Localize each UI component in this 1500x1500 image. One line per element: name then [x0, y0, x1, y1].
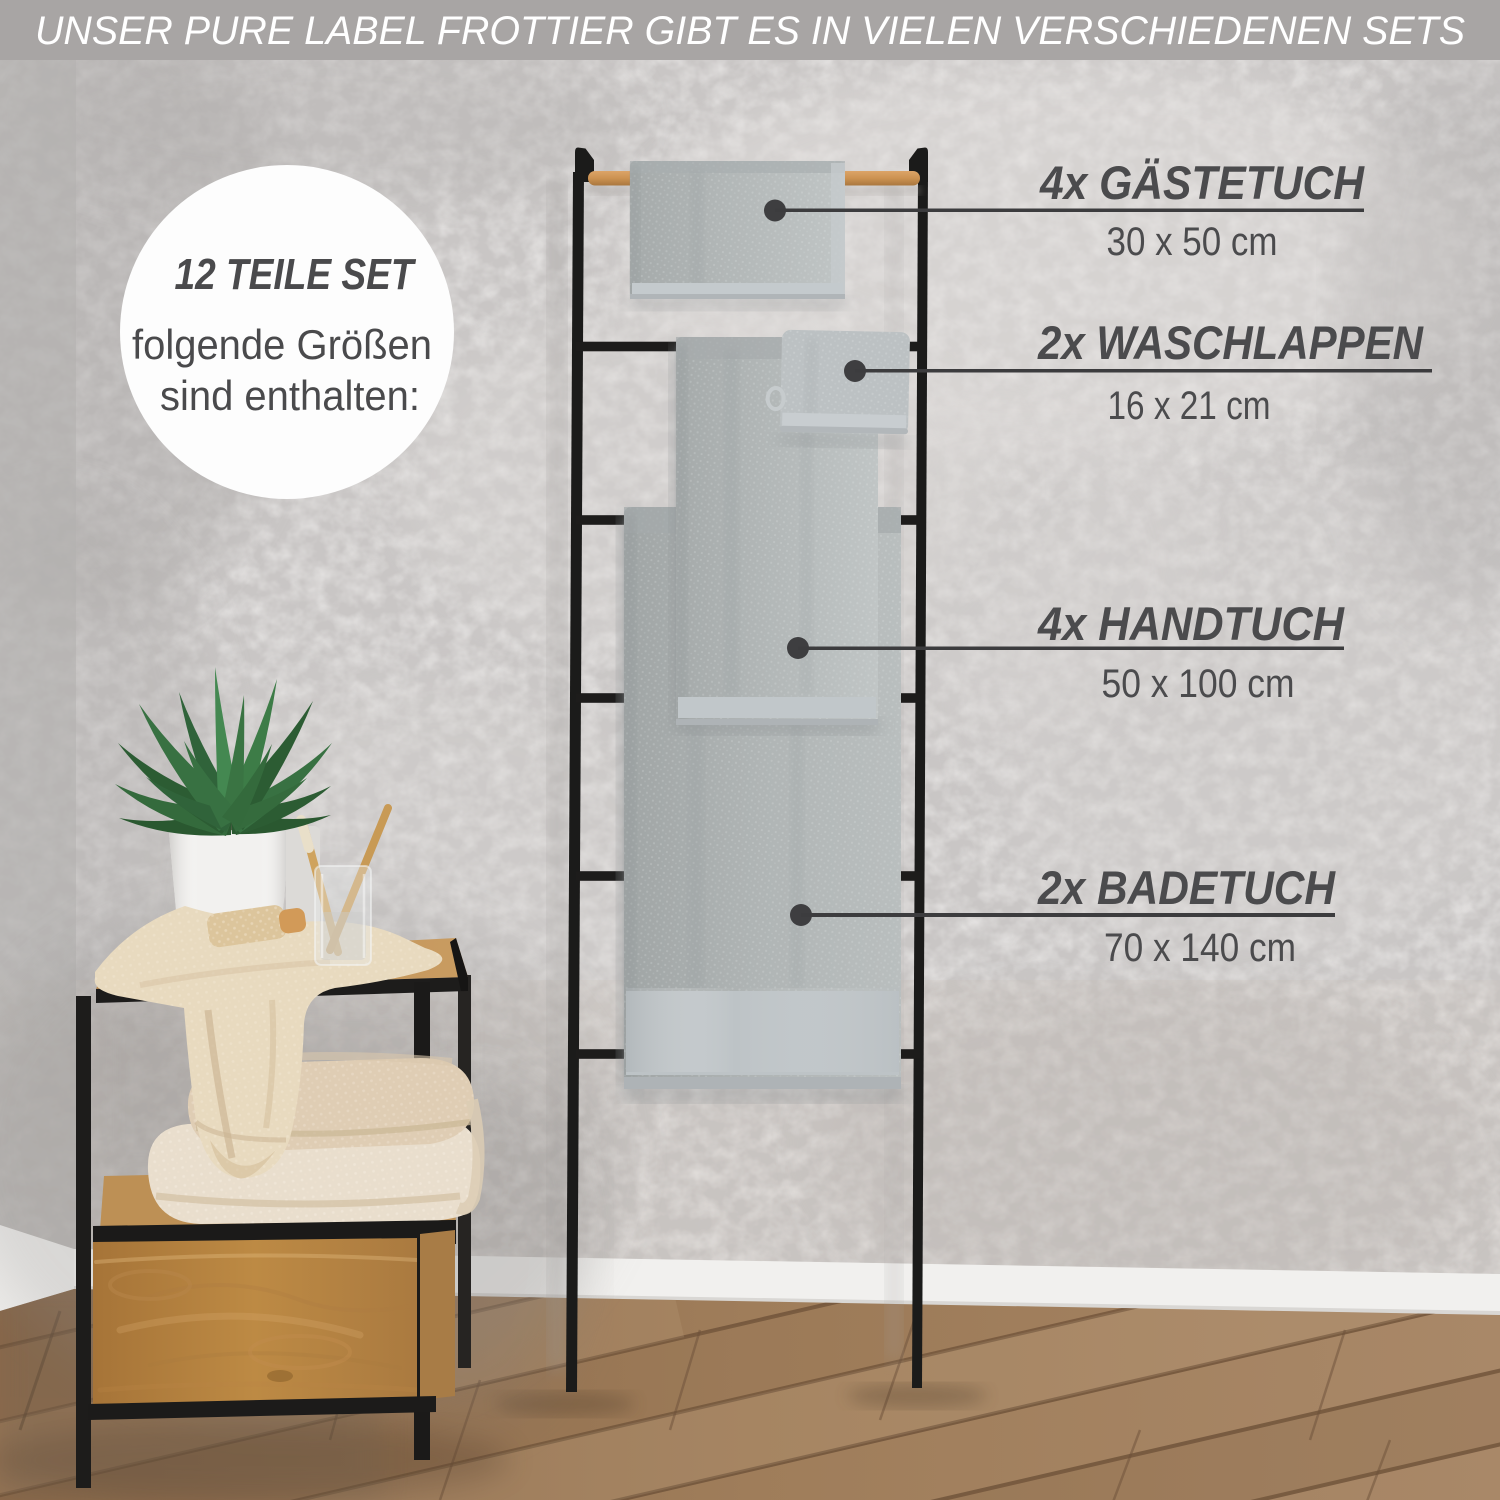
svg-text:2x BADETUCH: 2x BADETUCH [1037, 861, 1336, 914]
svg-text:UNSER PURE LABEL FROTTIER GIBT: UNSER PURE LABEL FROTTIER GIBT ES IN VIE… [35, 9, 1465, 53]
svg-text:30 x 50 cm: 30 x 50 cm [1107, 220, 1278, 264]
svg-text:70 x 140 cm: 70 x 140 cm [1104, 926, 1296, 970]
svg-text:sind enthalten:: sind enthalten: [160, 372, 420, 419]
svg-text:4x HANDTUCH: 4x HANDTUCH [1037, 597, 1345, 650]
svg-text:2x WASCHLAPPEN: 2x WASCHLAPPEN [1037, 316, 1424, 369]
svg-text:50 x 100 cm: 50 x 100 cm [1102, 662, 1295, 706]
svg-text:16 x 21 cm: 16 x 21 cm [1108, 384, 1271, 428]
svg-text:4x GÄSTETUCH: 4x GÄSTETUCH [1039, 156, 1365, 209]
svg-text:12 TEILE SET: 12 TEILE SET [175, 250, 417, 299]
svg-text:folgende Größen: folgende Größen [132, 321, 432, 368]
